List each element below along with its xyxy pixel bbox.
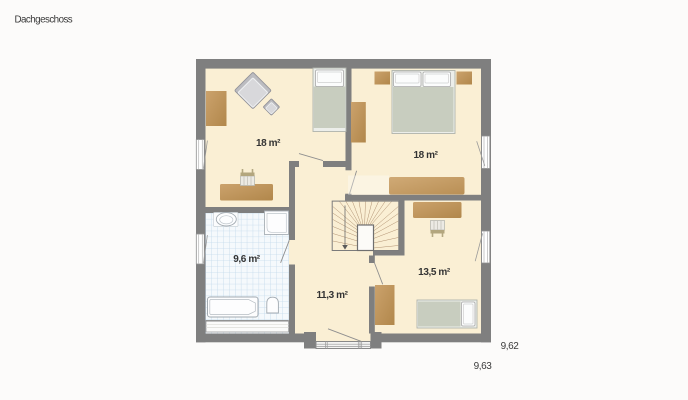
- svg-text:Dachgeschoss: Dachgeschoss: [15, 14, 73, 25]
- svg-text:18 m²: 18 m²: [256, 138, 281, 149]
- svg-text:18 m²: 18 m²: [413, 150, 438, 161]
- svg-text:9,63: 9,63: [474, 361, 493, 372]
- svg-text:11,3 m²: 11,3 m²: [316, 290, 348, 301]
- svg-text:9,6 m²: 9,6 m²: [233, 254, 261, 265]
- svg-text:9,62: 9,62: [501, 341, 520, 352]
- svg-text:13,5 m²: 13,5 m²: [418, 267, 451, 278]
